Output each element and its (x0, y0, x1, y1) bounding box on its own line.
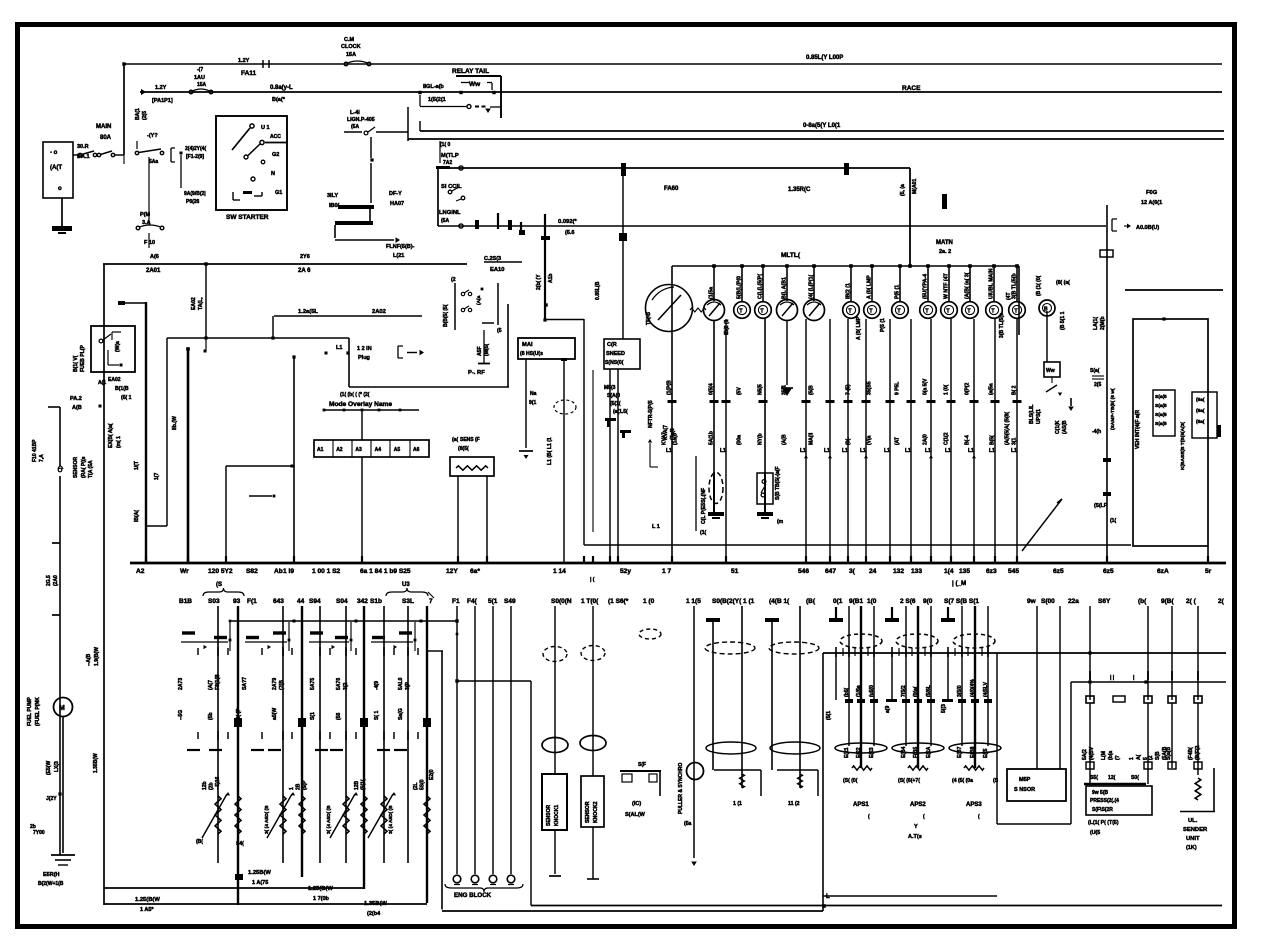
svg-text:9(B1: 9(B1 (849, 598, 863, 605)
svg-text:N5(5: N5(5 (758, 384, 764, 395)
svg-text:9A(9/B(2|: 9A(9/B(2| (184, 191, 206, 197)
svg-text:(S( (0(: (S( (0( (843, 778, 858, 784)
svg-text:(A(T: (A(T (50, 165, 62, 171)
svg-text:(1( 0: (1( 0 (440, 142, 451, 148)
svg-text:S94: S94 (309, 598, 321, 605)
svg-text:|: | (1133, 675, 1135, 681)
svg-text:1.9(B(W: 1.9(B(W (94, 647, 100, 666)
svg-text:P(5 (1: P(5 (1 (880, 318, 886, 332)
svg-text:0(P(2: 0(P(2 (965, 383, 971, 395)
svg-text:A6: A6 (413, 447, 420, 453)
svg-text:IB(2 (1: IB(2 (1 (846, 283, 852, 299)
svg-text:L1: L1 (336, 345, 342, 351)
svg-text:RACE: RACE (902, 85, 921, 92)
svg-text:L1: L1 (720, 448, 726, 454)
svg-text:5((3: 5((3 (941, 704, 947, 713)
svg-text:L(21: L(21 (393, 253, 404, 259)
svg-text:24: 24 (869, 568, 877, 575)
svg-text:E((5: E((5 (983, 748, 989, 758)
svg-text:G2: G2 (272, 152, 279, 158)
svg-text:(S(LF: (S(LF (1094, 503, 1107, 509)
svg-text:2A 6: 2A 6 (298, 268, 311, 274)
svg-text:2A02: 2A02 (372, 309, 386, 315)
svg-text:Na: Na (530, 391, 537, 397)
svg-text:2( (: 2( ( (1186, 598, 1197, 605)
svg-text:B(1( V(: B(1( V( (73, 355, 79, 372)
svg-text:L1 (B( L1 (1: L1 (B( L1 (1 (547, 437, 553, 465)
svg-text:9w 5(B: 9w 5(B (1092, 790, 1109, 796)
svg-text:PA.2: PA.2 (70, 396, 82, 402)
svg-text:APS3: APS3 (966, 802, 982, 808)
svg-text:(u5(0: (u5(0 (869, 685, 875, 697)
svg-text:0(5(4: 0(5(4 (709, 383, 715, 395)
svg-text:9(1: 9(1 (529, 400, 536, 406)
svg-text:(5(B: (5(B (809, 385, 815, 395)
svg-text:S5(: S5( (1090, 775, 1098, 781)
svg-text:6zA: 6zA (1157, 568, 1169, 575)
svg-text:T: T (991, 309, 995, 315)
svg-text:L1: L1 (945, 448, 951, 454)
svg-text:3(: 3( (849, 568, 856, 575)
svg-text:0(1: 0(1 (833, 598, 843, 605)
svg-text:F1: F1 (452, 598, 460, 605)
svg-text:SENDER: SENDER (1183, 827, 1208, 833)
svg-text:3(2: 3(2 (343, 682, 349, 690)
svg-text:(: ( (868, 814, 870, 820)
svg-text:M5(3: M5(3 (604, 385, 616, 391)
svg-text:B(-4: B(-4 (965, 435, 971, 445)
svg-text:2Y6: 2Y6 (300, 254, 310, 260)
svg-text:SENSOR: SENSOR (73, 456, 79, 478)
svg-text:93: 93 (233, 598, 241, 605)
svg-text:120 5Y2: 120 5Y2 (208, 568, 233, 575)
svg-text:A(: A( (1136, 754, 1142, 760)
svg-text:(1(: (1( (700, 530, 707, 536)
svg-text:S4(: S4( (236, 841, 244, 847)
svg-text:0.85L(B: 0.85L(B (595, 281, 601, 300)
svg-text:44: 44 (297, 598, 305, 605)
svg-text:(1( (b( ( (* (2(: (1( (b( ( (* (2( (340, 392, 370, 398)
svg-text:647: 647 (825, 568, 836, 575)
svg-text:2(5: 2(5 (1094, 382, 1101, 388)
svg-text:A1: A1 (317, 447, 324, 453)
svg-text:A(6: A(6 (150, 254, 159, 260)
svg-text:(4 (5( (0a: (4 (5( (0a (952, 778, 973, 784)
svg-text:12Y: 12Y (446, 568, 458, 575)
svg-text:(5.6: (5.6 (565, 230, 574, 236)
svg-text:(5(6L: (5(6L (926, 685, 932, 697)
svg-text:9 P5L: 9 P5L (895, 382, 901, 395)
svg-text:F8(1(B: F8(1(B (215, 674, 221, 690)
svg-text:(5(1(: (5(1( (361, 779, 367, 790)
svg-text:IIb.(W: IIb.(W (172, 416, 178, 430)
svg-text:FLNF(5(B)-: FLNF(5(B)- (386, 244, 415, 250)
svg-text:L: L (826, 894, 830, 900)
svg-text:6z5: 6z5 (1103, 568, 1114, 575)
svg-text:2a. 2: 2a. 2 (939, 249, 951, 255)
svg-text:Wr: Wr (180, 568, 189, 575)
svg-text:(b(: (b( (1138, 598, 1147, 605)
svg-text:T: T (967, 309, 971, 315)
svg-text:(2b: (2b (209, 783, 215, 791)
svg-text:T: T (869, 309, 873, 315)
svg-text:K(BASE(B T(B(5(A(3(: K(BASE(B T(B(5(A(3( (1180, 422, 1186, 470)
svg-text:FUEB PL(P: FUEB PL(P (80, 345, 86, 372)
svg-text:B(1(B: B(1(B (115, 386, 129, 392)
svg-text:S NSOR: S NSOR (1014, 787, 1035, 793)
svg-text:[PA1P1]: [PA1P1] (152, 98, 173, 104)
svg-text:SENS (F: SENS (F (460, 437, 480, 443)
svg-text:C(L(L(5(P(: C(L(L(5(P( (758, 274, 764, 299)
svg-text:N: N (271, 171, 275, 177)
svg-text:E(23: E(23 (869, 747, 875, 758)
svg-text:KNOCK2: KNOCK2 (593, 801, 599, 823)
svg-text:(5(1: (5(1 (826, 711, 832, 720)
svg-text:3(B TL(5(b: 3(B TL(5(b (1012, 273, 1018, 299)
svg-text:EX(B( A(a(: EX(B( A(a( (108, 423, 114, 448)
svg-text:B(B(5( (5(: B(B(5( (5( (443, 304, 449, 327)
svg-text:L1: L1 (860, 448, 866, 454)
svg-text:5A76: 5A76 (336, 678, 342, 690)
svg-text:(F4B(: (F4B( (1188, 747, 1194, 760)
svg-text:(B(: (B( (806, 598, 816, 605)
svg-text:12(: 12( (1108, 775, 1116, 781)
svg-text:S( 1: S( 1 (374, 710, 380, 720)
svg-text:1.2a(5L: 1.2a(5L (298, 309, 318, 315)
svg-text:(A5(B: (A5(B (1062, 420, 1068, 434)
svg-text:a(9: a(9 (885, 706, 891, 713)
svg-text:PRESS(2(.(4: PRESS(2(.(4 (1090, 798, 1119, 804)
svg-text:(8 HS(U(s: (8 HS(U(s (520, 351, 543, 357)
svg-text:5S(0: 5S(0 (420, 779, 426, 790)
svg-text:(RA( P((s: (RA( P((s (81, 456, 87, 478)
svg-text:VEH INT(4(F a(R: VEH INT(4(F a(R (1135, 410, 1141, 449)
svg-text:1(5(2(1: 1(5(2(1 (428, 97, 446, 103)
svg-text:S(00: S(00 (1041, 598, 1055, 605)
svg-text:S(a(5: S(a(5 (1155, 421, 1167, 427)
svg-text:1AU: 1AU (194, 75, 205, 81)
svg-text:(5A: (5A (441, 218, 449, 224)
svg-text:6a 1 84 1 b9 S25: 6a 1 84 1 b9 S25 (360, 568, 411, 575)
svg-text:3( (4 A5D( (B: 3( (4 A5D( (B (264, 805, 270, 834)
svg-text:11 (2: 11 (2 (788, 801, 800, 807)
svg-text:- o: - o (50, 150, 58, 156)
svg-text:S(7 S(B S(1: S(7 S(B S(1 (944, 598, 979, 605)
svg-text:A5: A5 (394, 447, 401, 453)
svg-text:S(a(5: S(a(5 (1155, 403, 1167, 409)
svg-text:5(1: 5(1 (488, 598, 498, 605)
svg-text:S04: S04 (336, 598, 348, 605)
svg-text:(S: (S (216, 582, 222, 588)
svg-text:2A(0: 2A(0 (923, 434, 929, 445)
svg-text:(2(b4: (2(b4 (367, 911, 381, 917)
svg-text:(2: (2 (451, 277, 456, 283)
svg-text:S0(B(2(Y( 1 (1: S0(B(2(Y( 1 (1 (712, 598, 755, 605)
svg-text:643: 643 (273, 598, 284, 605)
svg-text:FUEL PUMP: FUEL PUMP (27, 697, 33, 726)
svg-text:(56: (56 (336, 712, 342, 720)
svg-text:(1 S6(*: (1 S6(* (608, 598, 629, 605)
svg-text:S1b: S1b (370, 598, 382, 605)
svg-text:3(5(0: 3(5(0 (957, 685, 963, 697)
svg-text:MA(II: MA(II (809, 432, 815, 445)
svg-text:T: T (925, 309, 929, 315)
svg-text:2(4)2Y(4(: 2(4)2Y(4( (185, 146, 206, 152)
svg-text:Ww: Ww (469, 81, 481, 88)
svg-text:MAIN: MAIN (96, 124, 111, 130)
svg-text:A.T(s: A.T(s (908, 834, 922, 840)
svg-text:S(a(: S(a( (1090, 368, 1100, 374)
svg-text:1.35R(C: 1.35R(C (788, 187, 811, 193)
svg-text:7(5(2: 7(5(2 (901, 685, 907, 697)
svg-text:12 A(6(1: 12 A(6(1 (1141, 200, 1162, 206)
svg-text:(5V: (5V (737, 387, 743, 395)
svg-text:S(B: S(B (1155, 751, 1161, 760)
svg-text:EA10: EA10 (490, 267, 505, 273)
svg-text:(5a(: (5a( (1196, 419, 1205, 425)
svg-text:F(1: F(1 (247, 598, 257, 605)
svg-text:T: T (946, 309, 950, 315)
svg-text:0-8a(5(Y L0(1: 0-8a(5(Y L0(1 (803, 123, 841, 129)
svg-text:SW STARTER: SW STARTER (226, 214, 269, 221)
svg-text:CLOCK: CLOCK (341, 44, 361, 50)
svg-text:A (0( LMP: A (0( LMP (856, 316, 862, 340)
svg-text:3(P: 3(P (405, 681, 411, 690)
svg-text:T: T (897, 309, 901, 315)
svg-text:ENG BLOCK: ENG BLOCK (454, 892, 492, 899)
svg-text:| (_M: | (_M (952, 580, 966, 587)
svg-text:S(A(0: S(A(0 (607, 393, 620, 399)
svg-text:1 I9: 1 I9 (283, 568, 294, 575)
svg-text:TA(L,: TA(L, (198, 297, 204, 310)
svg-text:(m: (m (777, 519, 784, 525)
svg-text:2G.5: 2G.5 (46, 575, 52, 586)
svg-text:E(B8: E(B8 (970, 746, 976, 758)
svg-text:(5a: (5a (684, 821, 692, 827)
svg-text:2(: 2( (1218, 598, 1225, 605)
svg-text:52y: 52y (620, 568, 631, 575)
svg-text:(E5(W: (E5(W (46, 761, 52, 775)
svg-text:--5)16: --5)16 (215, 776, 221, 790)
svg-text:2A01: 2A01 (146, 268, 161, 274)
svg-text:1.25(B(W: 1.25(B(W (135, 897, 160, 903)
svg-text:A (0( LMP: A (0( LMP (867, 275, 873, 299)
svg-text:(1K): (1K) (1186, 845, 1197, 851)
svg-text:S(B TB(5(-(a(F: S(B TB(5(-(a(F (775, 466, 781, 500)
svg-text:F4(: F4( (467, 598, 478, 605)
svg-text:9(B(: 9(B( (1161, 598, 1174, 605)
svg-text:9w: 9w (1027, 598, 1037, 605)
svg-text:F0G: F0G (1146, 190, 1158, 196)
svg-text:T: T (848, 309, 852, 315)
svg-text:(8( (a(: (8( (a( (1056, 280, 1070, 286)
svg-text:0.092(*: 0.092(* (558, 219, 577, 225)
svg-text:SENSOR: SENSOR (546, 804, 552, 826)
svg-text:S0(: S0( (1131, 775, 1139, 781)
svg-text:(: ( (978, 814, 980, 820)
svg-text:U3: U3 (402, 582, 410, 588)
svg-text:LA(1(: LA(1( (1093, 317, 1099, 330)
svg-text:3(B TL(5(b: 3(B TL(5(b (999, 313, 1005, 338)
svg-text:S(NS(0(: S(NS(0( (605, 360, 624, 366)
svg-text:A5F: A5F (477, 346, 483, 356)
svg-text:7,A: 7,A (39, 454, 45, 462)
svg-text:UNIT: UNIT (1186, 836, 1200, 842)
svg-text:1(7: 1(7 (154, 473, 160, 480)
svg-text:(b5(: (b5( (844, 688, 850, 698)
svg-text:E(2A: E(2A (926, 746, 932, 758)
svg-text:15A: 15A (197, 82, 207, 88)
svg-text:o: o (58, 186, 62, 192)
svg-text:(U(5: (U(5 (1090, 830, 1100, 836)
svg-text:A4: A4 (375, 447, 382, 453)
svg-text:(S: (S (993, 778, 999, 784)
svg-text:2 S(6: 2 S(6 (900, 598, 916, 605)
svg-text:(a(5a: (a(5a (989, 383, 995, 395)
svg-text:E(B7: E(B7 (957, 746, 963, 758)
svg-text:(5a(: (5a( (1196, 408, 1205, 414)
svg-text:80A: 80A (100, 135, 112, 141)
svg-text:A3: A3 (355, 447, 362, 453)
svg-text:M: M (59, 705, 65, 712)
svg-text:S(1: S(1 (310, 712, 316, 720)
svg-text:(M(5(: (M(5( (484, 344, 490, 356)
svg-text:C(R: C(R (607, 342, 617, 348)
svg-text:(B(F(2: (B(F(2 (1195, 745, 1201, 760)
svg-text:C(1(K: C(1(K (1055, 420, 1061, 434)
svg-text:12B: 12B (354, 780, 360, 790)
svg-text:6z5: 6z5 (1053, 568, 1064, 575)
svg-text:(00a: (00a (737, 435, 743, 445)
svg-text:(2: (2 (1148, 755, 1154, 760)
svg-text:0(a 5(V: 0(a 5(V (923, 378, 929, 395)
svg-text:(5, (a: (5, (a (900, 184, 906, 196)
svg-text:--A(B: --A(B (86, 653, 92, 666)
svg-text:0.8a(y-L: 0.8a(y-L (270, 85, 293, 91)
svg-text:L1: L1 (884, 448, 890, 454)
svg-text:P(5 (1: P(5 (1 (895, 285, 901, 299)
svg-text:S82: S82 (246, 568, 258, 575)
svg-text:M(TLP: M(TLP (441, 153, 459, 159)
svg-text:P-. RF: P-. RF (468, 370, 485, 376)
svg-text:| (: | ( (590, 577, 595, 583)
svg-text:APS2: APS2 (910, 802, 926, 808)
svg-text:1 A(75: 1 A(75 (252, 880, 268, 886)
svg-text:5A(1b: 5A(1b (709, 431, 715, 445)
svg-text:(2A0: (2A0 (53, 575, 59, 586)
svg-text:T: T (760, 309, 764, 315)
svg-text:W NTF (4T: W NTF (4T (944, 273, 950, 299)
svg-text:A0.0B(U): A0.0B(U) (1136, 225, 1159, 231)
svg-text:(5A: (5A (351, 124, 359, 130)
svg-text:(B(: (B( (196, 839, 203, 845)
svg-text:S(a(B: S(a(B (1166, 747, 1172, 760)
svg-text:5Aa: 5Aa (149, 159, 158, 165)
svg-text:L1: L1 (824, 448, 830, 454)
svg-text:1 7(0b: 1 7(0b (313, 896, 330, 902)
svg-text:U 1: U 1 (261, 125, 270, 131)
svg-text:P6(26: P6(26 (186, 199, 200, 205)
svg-text:5A75: 5A75 (310, 678, 316, 690)
svg-text:1 7: 1 7 (662, 568, 671, 575)
svg-text:S(a(5: S(a(5 (1155, 412, 1167, 418)
svg-text:UL.: UL. (1188, 818, 1198, 824)
svg-text:(5( 1: (5( 1 (121, 395, 132, 401)
svg-text:S(F\S(2R: S(F\S(2R (1092, 807, 1113, 813)
svg-text:A1b: A1b (548, 274, 554, 283)
svg-text:-4(h: -4(h (1092, 429, 1101, 435)
svg-text:F10 41BP: F10 41BP (32, 439, 38, 462)
svg-text:LX(3: LX(3 (54, 761, 60, 772)
svg-text:(1(P(B: (1(P(B (667, 380, 673, 395)
svg-text:(0(a(: (0(a( (913, 686, 919, 697)
svg-text:L1: L1 (800, 448, 806, 454)
svg-text:NFTR-5(P(5: NFTR-5(P(5 (648, 400, 654, 428)
svg-text:(AT: (AT (895, 437, 901, 445)
svg-text:L1: L1 (905, 448, 911, 454)
svg-text:(a(: (a( (452, 437, 458, 443)
svg-text:HA07: HA07 (390, 201, 404, 207)
svg-text:1.35B(W: 1.35B(W (364, 901, 387, 907)
svg-text:132: 132 (893, 568, 904, 575)
svg-text:(4(5LV: (4(5LV (983, 681, 989, 697)
svg-text:SENSOR: SENSOR (585, 801, 591, 823)
svg-text:6a*: 6a* (470, 568, 480, 575)
svg-text:1(4: 1(4 (944, 568, 954, 575)
svg-text:S49: S49 (504, 598, 516, 605)
svg-text:C.M: C.M (344, 37, 355, 43)
svg-text:(2L: (2L (413, 783, 419, 791)
svg-text:M5P: M5P (1019, 777, 1031, 783)
svg-text:Y: Y (914, 824, 918, 830)
svg-text:RELAY TAIL: RELAY TAIL (452, 68, 489, 75)
svg-text:12b: 12b (202, 781, 208, 790)
svg-text:(5(P: (5(P (302, 780, 308, 790)
svg-text:(4( (L(P(1(: (4( (L(P(1( (809, 275, 815, 299)
svg-text:B(5(: B(5( (990, 435, 996, 445)
svg-text:-(7: -(7 (197, 67, 203, 73)
svg-text:S(F: S(F (638, 762, 646, 768)
svg-text:(V(a: (V(a (867, 435, 873, 445)
svg-text:IB(A(: IB(A( (134, 510, 140, 522)
svg-text:2(M(b: 2(M(b (1100, 316, 1106, 330)
svg-text:(5(1(: (5(1( (610, 401, 621, 407)
svg-text:22a: 22a (1068, 598, 1079, 605)
svg-text:1.2Y: 1.2Y (155, 85, 167, 91)
svg-text:B(2(W+1(B: B(2(W+1(B (38, 881, 64, 887)
svg-text:2(b( (Y: 2(b( (Y (536, 274, 542, 290)
svg-text:(b(a: (b(a (1108, 751, 1114, 760)
svg-text:5(B(L(P(0: 5(B(L(P(0 (737, 276, 743, 299)
svg-text:(1(6a: (1(6a (856, 685, 862, 697)
svg-text:MAI: MAI (522, 342, 533, 348)
svg-text:(5U(YPA-4: (5U(YPA-4 (923, 274, 929, 299)
svg-text:2A79: 2A79 (272, 678, 278, 690)
svg-text:(B (1( (0(: (B (1( (0( (1036, 275, 1042, 296)
svg-text:[F1-2(9]: [F1-2(9] (186, 154, 204, 160)
svg-text:(W(a: (W(a (115, 341, 121, 352)
svg-text:S6Y: S6Y (1098, 598, 1111, 605)
svg-text:ACC: ACC (270, 134, 281, 140)
svg-text:(8(5(: (8(5( (458, 446, 469, 452)
svg-text:KNOCK1: KNOCK1 (554, 805, 560, 826)
svg-text:L(M: L(M (1101, 751, 1107, 760)
svg-text:(1a(b: (1a(b (673, 433, 679, 445)
svg-text:PULLER & SYNCHRO: PULLER & SYNCHRO (678, 762, 684, 814)
svg-text:E(21: E(21 (844, 747, 850, 758)
svg-text:BA(1: BA(1 (135, 108, 141, 120)
svg-text:1 1(5: 1 1(5 (686, 598, 701, 605)
